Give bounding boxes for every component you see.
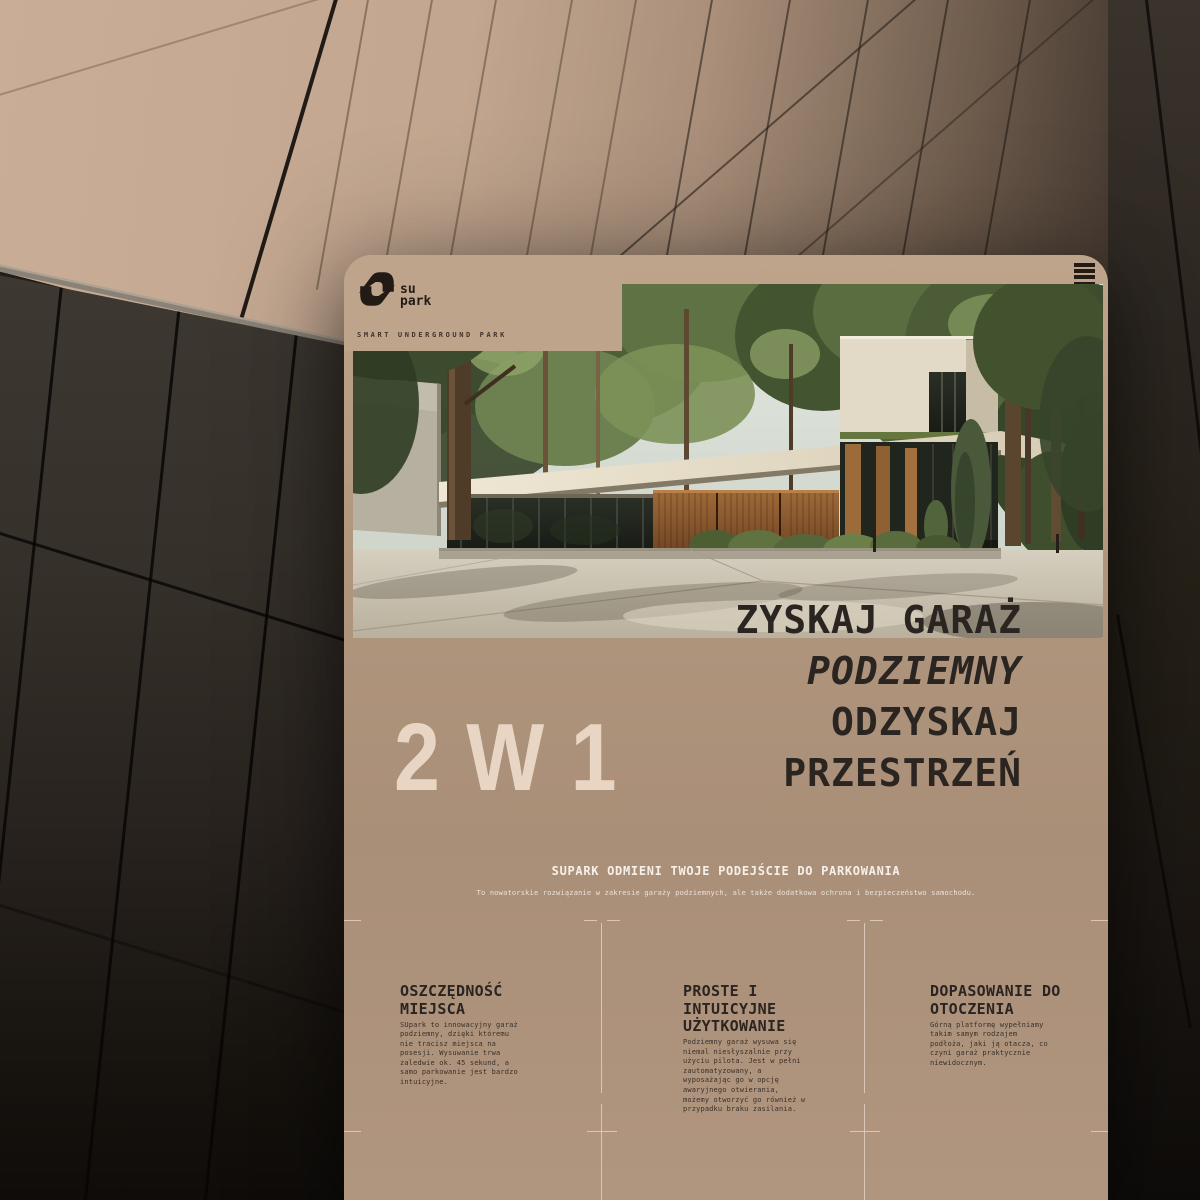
headline-line-4: PRZESTRZEŃ xyxy=(735,748,1022,799)
guide-tick xyxy=(584,920,597,921)
guide-vertical-line xyxy=(601,923,602,1200)
backdrop-right-panels xyxy=(1108,0,1200,1200)
menu-button[interactable] xyxy=(1074,263,1096,283)
main-headline: ZYSKAJ GARAŻ PODZIEMNY ODZYSKAJ PRZESTRZ… xyxy=(735,595,1022,799)
headline-line-2: PODZIEMNY xyxy=(735,646,1022,697)
guide-tick xyxy=(607,920,620,921)
logo-wordmark: su park xyxy=(400,284,431,308)
badge-2w1: 2 W 1 xyxy=(394,710,618,806)
brand-tagline: SMART UNDERGROUND PARK xyxy=(357,331,507,339)
guide-cross xyxy=(850,1131,880,1132)
feature-title: PROSTE I INTUICYJNE UŻYTKOWANIE xyxy=(683,983,833,1036)
intro-title: SUPARK ODMIENI TWOJE PODEJŚCIE DO PARKOW… xyxy=(344,864,1108,878)
backdrop-dark-panels xyxy=(0,266,350,1200)
headline-line-1: ZYSKAJ GARAŻ xyxy=(735,595,1022,646)
logo-text-park: park xyxy=(400,296,431,308)
guide-tick xyxy=(344,1131,361,1132)
feature-title: DOPASOWANIE DO OTOCZENIA xyxy=(930,983,1080,1018)
feature-body: Górną platformę wypełniamy takim samym r… xyxy=(930,1021,1080,1069)
feature-column-2: PROSTE I INTUICYJNE UŻYTKOWANIE Podziemn… xyxy=(683,983,833,1115)
logo-block[interactable]: su park SMART UNDERGROUND PARK xyxy=(344,255,622,351)
feature-column-3: DOPASOWANIE DO OTOCZENIA Górną platformę… xyxy=(930,983,1080,1068)
feature-title: OSZCZĘDNOŚĆ MIEJSCA xyxy=(400,983,550,1018)
website-card: su park SMART UNDERGROUND PARK ZYSKAJ GA… xyxy=(344,255,1108,1200)
hamburger-icon xyxy=(1074,263,1095,267)
guide-tick xyxy=(870,920,883,921)
guide-tick xyxy=(847,920,860,921)
guide-tick xyxy=(344,920,361,921)
guide-vertical-line xyxy=(864,923,865,1200)
guide-cross xyxy=(587,1131,617,1132)
guide-tick xyxy=(1091,1131,1108,1132)
supark-logo-icon xyxy=(356,262,398,316)
feature-body: SUpark to innowacyjny garaż podziemny, d… xyxy=(400,1021,550,1088)
feature-body: Podziemny garaż wysuwa się niemal niesły… xyxy=(683,1038,833,1115)
intro-subtitle: To nowatorskie rozwiązanie w zakresie ga… xyxy=(344,889,1108,897)
headline-line-3: ODZYSKAJ xyxy=(735,697,1022,748)
guide-tick xyxy=(1091,920,1108,921)
feature-column-1: OSZCZĘDNOŚĆ MIEJSCA SUpark to innowacyjn… xyxy=(400,983,550,1088)
